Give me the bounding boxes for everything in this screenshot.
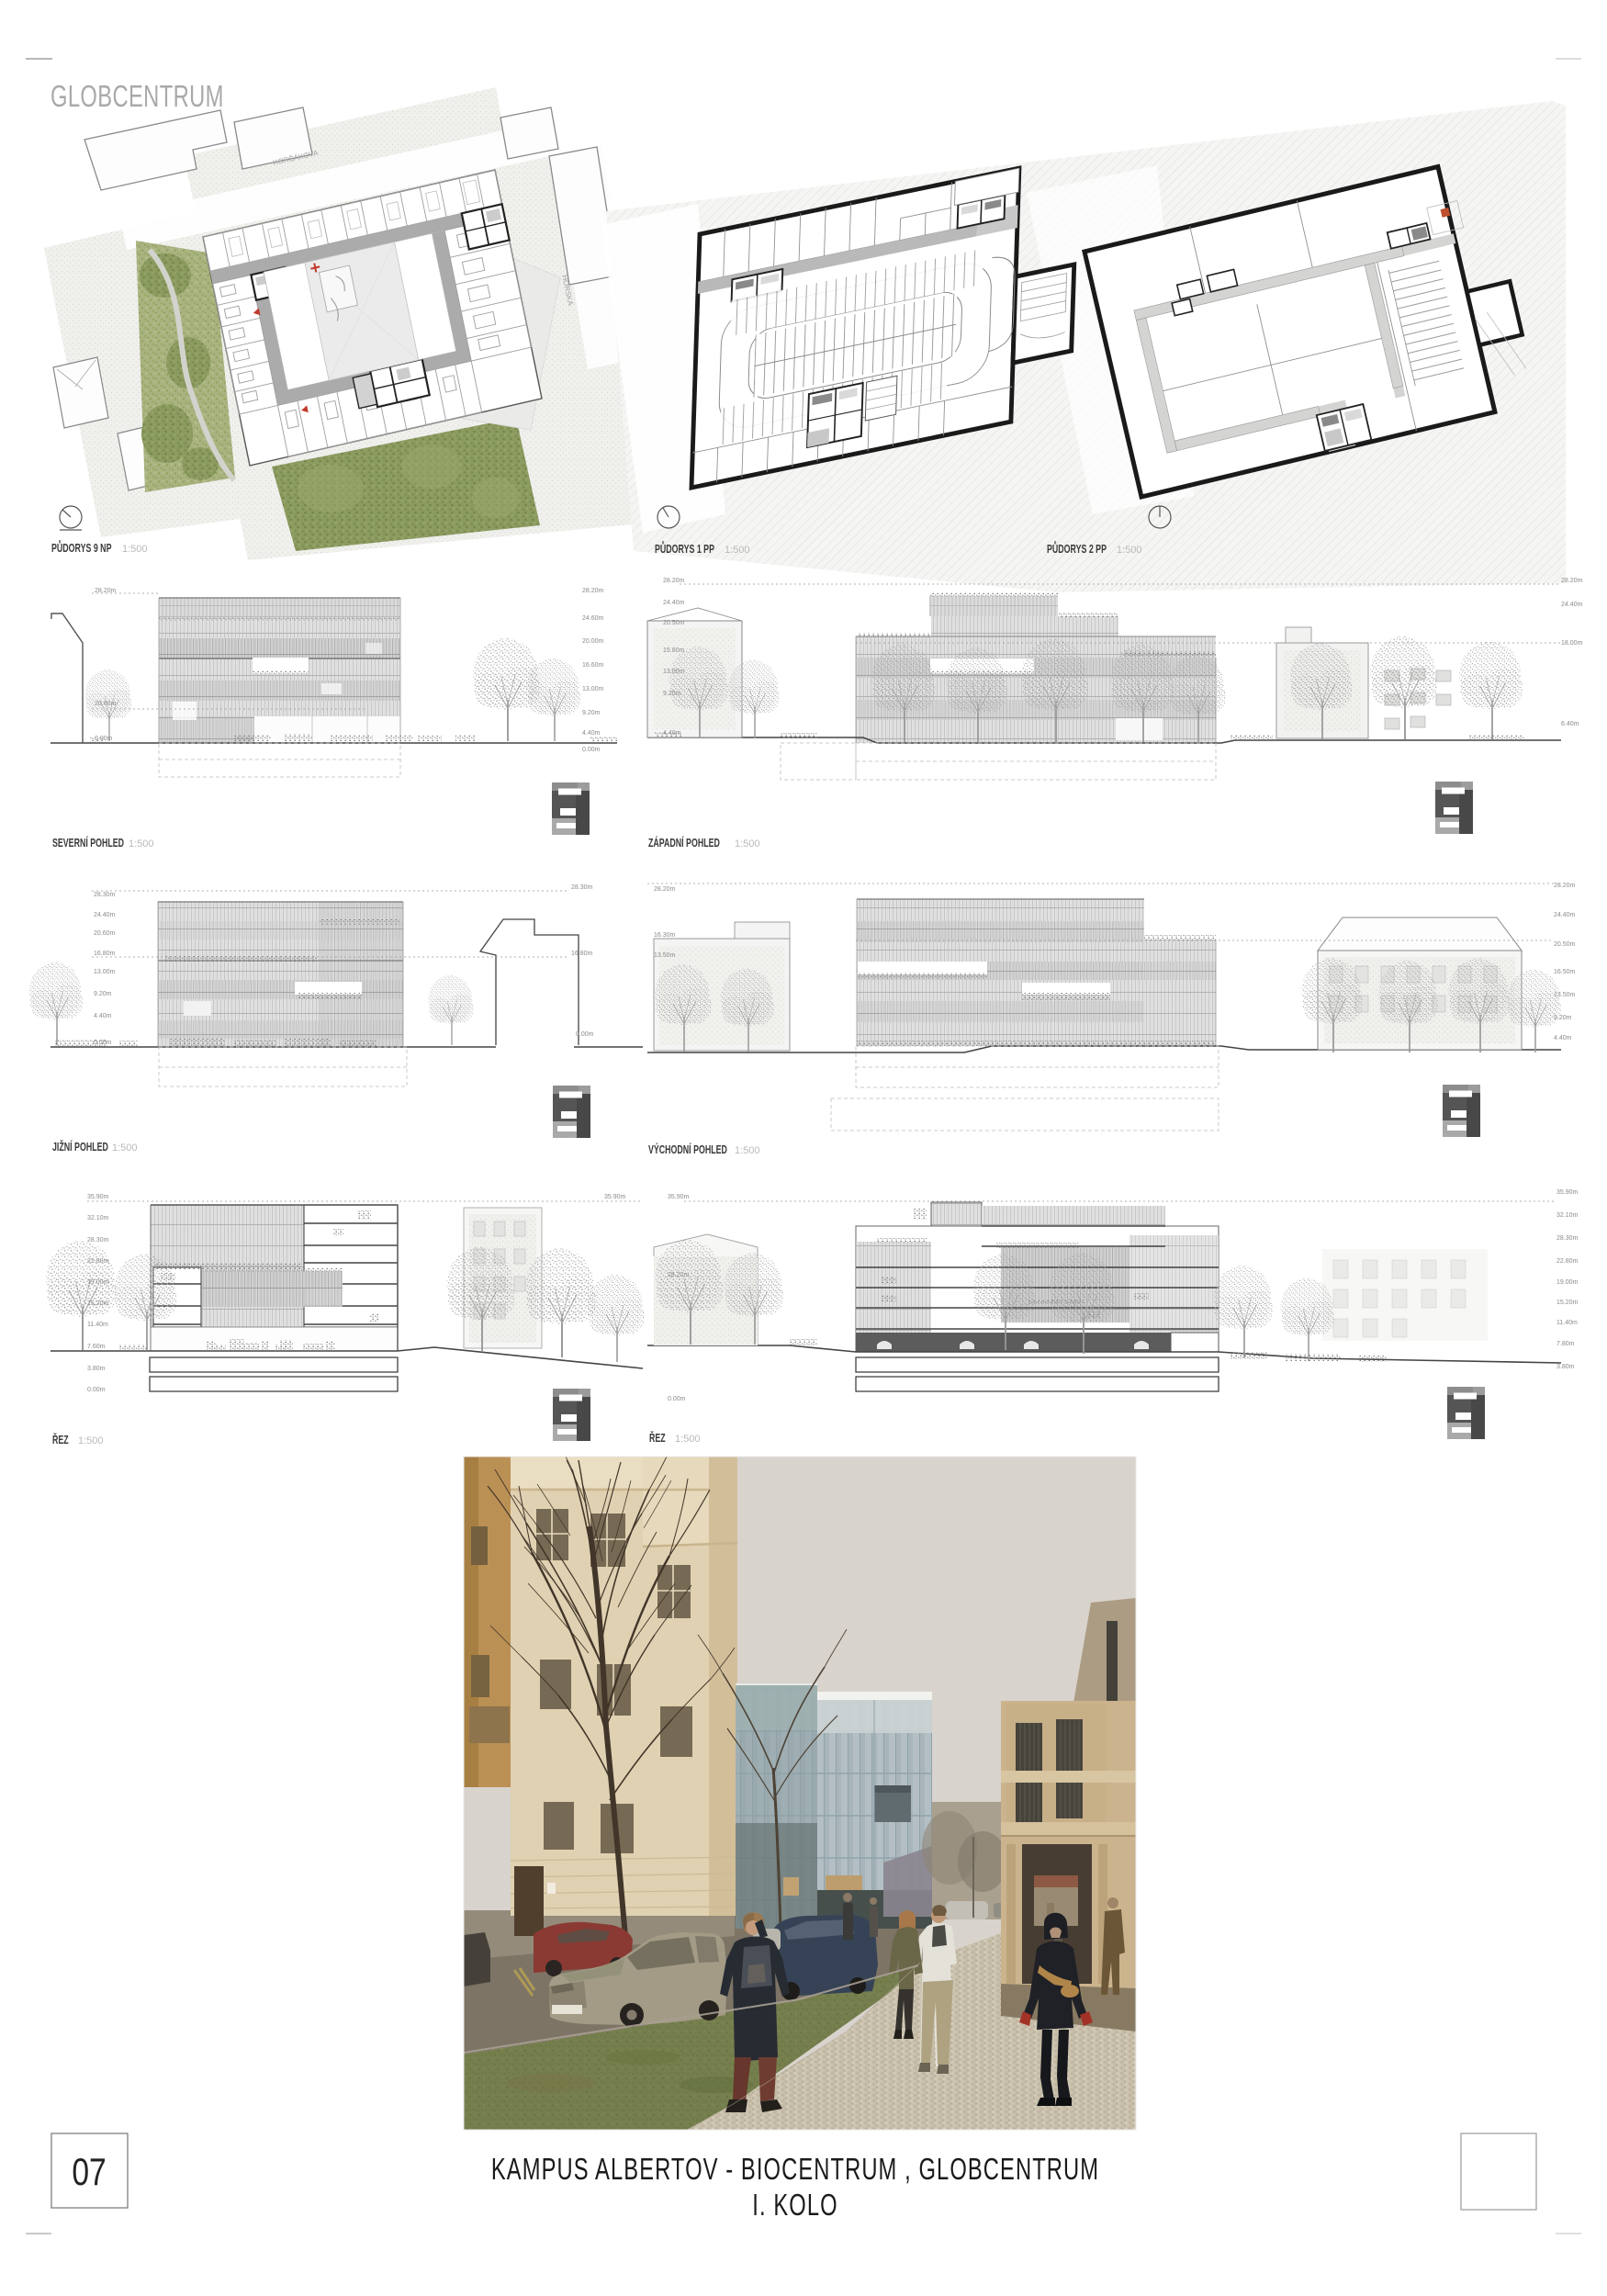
svg-text:PŮDORYS 2 PP: PŮDORYS 2 PP	[1047, 541, 1107, 556]
svg-text:4.40m: 4.40m	[663, 730, 681, 737]
svg-text:GLOBCENTRUM: GLOBCENTRUM	[51, 80, 224, 114]
svg-text:35.90m: 35.90m	[604, 1194, 626, 1200]
svg-text:9.20m: 9.20m	[1554, 1015, 1572, 1021]
svg-text:PŮDORYS 1 PP: PŮDORYS 1 PP	[655, 541, 714, 556]
svg-text:13.50m: 13.50m	[654, 952, 676, 959]
svg-text:1:500: 1:500	[1117, 545, 1142, 556]
svg-text:15.20m: 15.20m	[87, 1300, 109, 1307]
svg-text:28.20m: 28.20m	[1554, 883, 1576, 889]
svg-text:20.00m: 20.00m	[582, 638, 604, 645]
svg-text:20.50m: 20.50m	[663, 620, 685, 626]
svg-text:28.20m: 28.20m	[1561, 578, 1583, 584]
svg-text:28.30m: 28.30m	[571, 884, 593, 891]
svg-text:1:500: 1:500	[122, 544, 148, 555]
svg-text:7.60m: 7.60m	[87, 1344, 106, 1350]
svg-text:28.30m: 28.30m	[87, 1237, 109, 1244]
svg-text:13.00m: 13.00m	[94, 969, 116, 975]
svg-text:28.20m: 28.20m	[663, 578, 685, 584]
svg-text:1:500: 1:500	[735, 838, 760, 850]
svg-text:0.00m: 0.00m	[582, 747, 601, 753]
svg-text:32.10m: 32.10m	[87, 1215, 109, 1221]
svg-text:22.80m: 22.80m	[1556, 1258, 1579, 1265]
svg-text:7.80m: 7.80m	[1556, 1341, 1575, 1347]
svg-text:4.40m: 4.40m	[94, 1013, 112, 1019]
svg-text:13.00m: 13.00m	[582, 686, 604, 692]
svg-text:13.00m: 13.00m	[663, 669, 685, 675]
svg-text:1:500: 1:500	[129, 838, 154, 850]
svg-text:28.30m: 28.30m	[1556, 1235, 1579, 1242]
svg-text:28.30m: 28.30m	[94, 892, 116, 898]
svg-text:0.00m: 0.00m	[668, 1396, 686, 1402]
svg-text:24.60m: 24.60m	[582, 615, 604, 622]
svg-text:ŘEZ: ŘEZ	[52, 1433, 69, 1446]
svg-text:KAMPUS ALBERTOV - BIOCENTRU: KAMPUS ALBERTOV - BIOCENTRUM , GLOBCENTR…	[491, 2153, 1099, 2187]
svg-text:20.50m: 20.50m	[1554, 941, 1576, 948]
svg-text:35.90m: 35.90m	[87, 1194, 109, 1200]
svg-text:3.80m: 3.80m	[87, 1366, 106, 1372]
svg-text:07: 07	[72, 2152, 106, 2194]
svg-text:6.40m: 6.40m	[1561, 721, 1579, 727]
svg-text:ŘEZ: ŘEZ	[649, 1431, 666, 1445]
svg-text:13.50m: 13.50m	[1554, 992, 1576, 998]
svg-text:15.80m: 15.80m	[663, 647, 685, 654]
svg-text:24.40m: 24.40m	[94, 912, 116, 918]
svg-text:PŮDORYS 9 NP: PŮDORYS 9 NP	[51, 540, 112, 555]
svg-text:16.80m: 16.80m	[94, 951, 116, 957]
svg-text:VÝCHODNÍ POHLED: VÝCHODNÍ POHLED	[648, 1142, 727, 1156]
svg-text:0.00m: 0.00m	[87, 1387, 106, 1393]
svg-text:28.20m: 28.20m	[668, 1272, 690, 1278]
svg-text:0.00m: 0.00m	[94, 1040, 112, 1046]
svg-text:35.90m: 35.90m	[1556, 1189, 1579, 1196]
svg-text:16.30m: 16.30m	[654, 932, 676, 939]
svg-text:20.60m: 20.60m	[95, 701, 117, 707]
svg-text:19.00m: 19.00m	[1556, 1279, 1579, 1286]
svg-text:22.80m: 22.80m	[87, 1258, 109, 1265]
svg-text:11.40m: 11.40m	[87, 1322, 108, 1328]
svg-text:1:500: 1:500	[78, 1435, 104, 1446]
svg-text:28.20m: 28.20m	[582, 588, 604, 594]
svg-text:I. KOLO: I. KOLO	[752, 2189, 837, 2223]
svg-text:24.40m: 24.40m	[663, 600, 685, 606]
svg-text:16.80m: 16.80m	[571, 951, 593, 957]
svg-text:1:500: 1:500	[735, 1145, 760, 1156]
svg-text:15.20m: 15.20m	[1556, 1300, 1579, 1306]
svg-text:28.20m: 28.20m	[654, 886, 676, 893]
svg-text:16.50m: 16.50m	[1554, 969, 1576, 975]
svg-text:SEVERNÍ POHLED: SEVERNÍ POHLED	[52, 836, 124, 850]
svg-text:20.60m: 20.60m	[94, 930, 116, 937]
svg-text:9.20m: 9.20m	[94, 991, 112, 997]
svg-text:24.40m: 24.40m	[1554, 912, 1576, 918]
svg-text:0.00m: 0.00m	[95, 736, 113, 742]
svg-text:0.00m: 0.00m	[576, 1031, 594, 1038]
svg-text:1:500: 1:500	[112, 1142, 138, 1154]
svg-text:19.00m: 19.00m	[87, 1279, 109, 1286]
svg-text:24.40m: 24.40m	[1561, 602, 1583, 608]
svg-text:35.90m: 35.90m	[668, 1194, 690, 1200]
svg-text:9.20m: 9.20m	[582, 710, 601, 716]
svg-text:9.20m: 9.20m	[663, 691, 681, 697]
svg-text:ZÁPADNÍ POHLED: ZÁPADNÍ POHLED	[648, 836, 720, 850]
svg-text:32.10m: 32.10m	[1556, 1212, 1579, 1219]
svg-text:1:500: 1:500	[675, 1434, 701, 1445]
svg-text:4.40m: 4.40m	[582, 730, 601, 737]
svg-text:JIŽNÍ POHLED: JIŽNÍ POHLED	[52, 1140, 108, 1154]
svg-text:3.80m: 3.80m	[1556, 1364, 1575, 1370]
svg-text:11.40m: 11.40m	[1556, 1320, 1578, 1326]
svg-text:1:500: 1:500	[725, 545, 750, 556]
svg-text:4.40m: 4.40m	[1554, 1035, 1572, 1041]
svg-text:18.00m: 18.00m	[1561, 640, 1583, 647]
svg-text:16.60m: 16.60m	[582, 662, 604, 669]
